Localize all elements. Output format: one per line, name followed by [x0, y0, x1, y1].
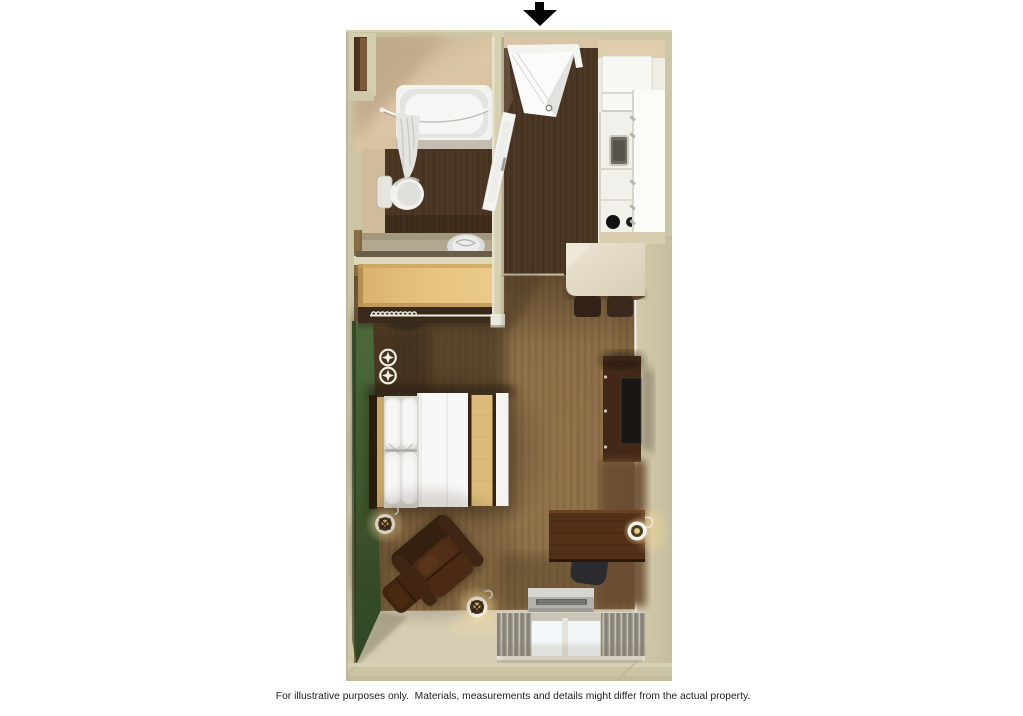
svg-text:For illustrative purposes only: For illustrative purposes only. Material… [276, 691, 750, 702]
